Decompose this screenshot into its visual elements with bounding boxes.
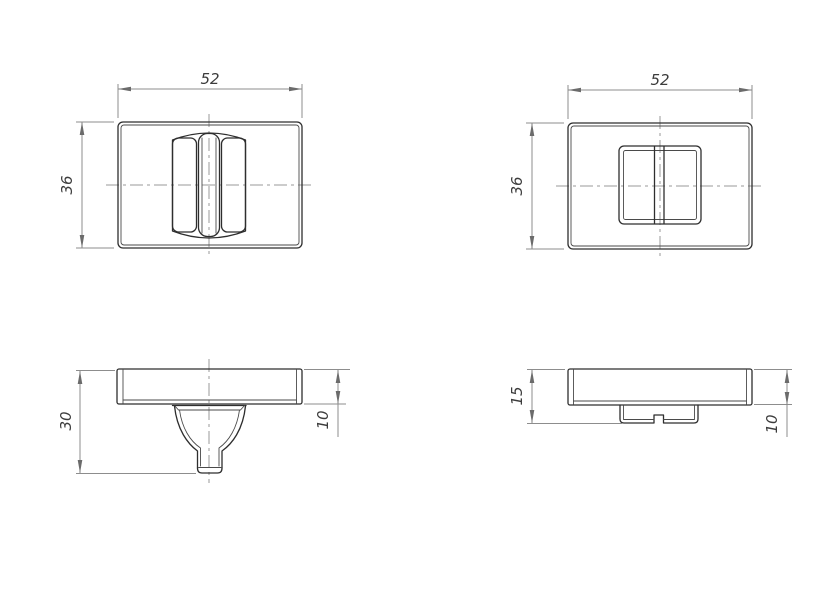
view-thumbturn-side: 30 10 bbox=[57, 359, 350, 483]
release-boss-profile bbox=[620, 405, 698, 423]
dimension-overall-depth: 15 bbox=[508, 370, 622, 424]
dim-label-plate-thickness: 10 bbox=[763, 414, 781, 433]
dimension-width: 52 bbox=[118, 70, 302, 118]
dimension-height: 36 bbox=[58, 122, 114, 248]
technical-drawing-canvas: 52 36 bbox=[0, 0, 840, 594]
dimension-height: 36 bbox=[508, 123, 564, 249]
dim-label-width: 52 bbox=[650, 71, 669, 89]
center-lines bbox=[556, 116, 764, 256]
plate-profile bbox=[568, 369, 752, 405]
dimension-width: 52 bbox=[568, 71, 752, 119]
dimension-plate-thickness: 10 bbox=[304, 370, 350, 438]
dim-label-overall-depth: 15 bbox=[508, 386, 526, 405]
center-lines bbox=[106, 114, 314, 256]
technical-drawing-page: 52 36 bbox=[0, 0, 840, 594]
dim-label-plate-thickness: 10 bbox=[314, 410, 332, 429]
view-release-side: 15 10 bbox=[508, 369, 792, 437]
dim-label-width: 52 bbox=[200, 70, 219, 88]
dim-label-overall-depth: 30 bbox=[57, 411, 75, 430]
dimension-plate-thickness: 10 bbox=[754, 370, 792, 438]
view-thumbturn-front: 52 36 bbox=[58, 70, 314, 256]
dim-label-height: 36 bbox=[508, 176, 526, 195]
dim-label-height: 36 bbox=[58, 175, 76, 194]
view-release-front: 52 36 bbox=[508, 71, 764, 256]
dimension-overall-depth: 30 bbox=[57, 371, 196, 474]
